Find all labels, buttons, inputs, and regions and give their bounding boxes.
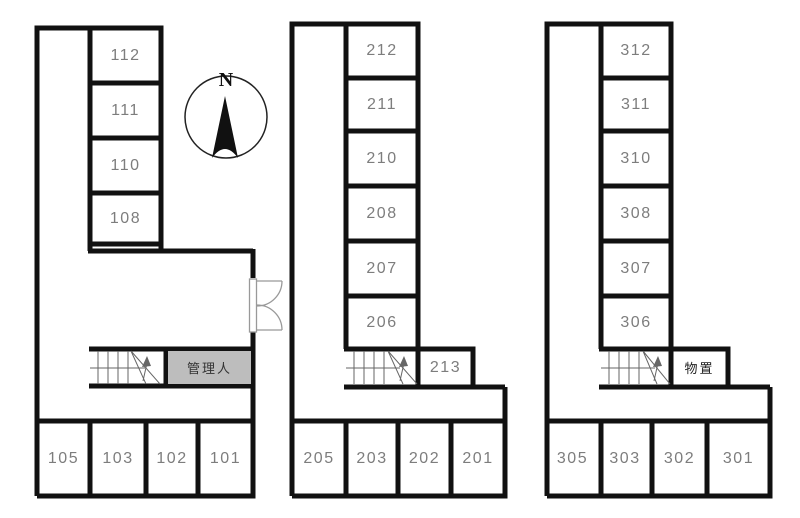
room-202: 202 [398, 421, 451, 496]
room-207: 207 [346, 241, 418, 296]
room-111: 111 [90, 83, 161, 138]
room-101: 101 [198, 421, 253, 496]
stairs-icon [90, 351, 160, 384]
floor-plan-canvas: N 112 111 110 108 管理人 105 103 102 101 21… [0, 0, 800, 518]
room-102: 102 [146, 421, 198, 496]
room-310: 310 [601, 131, 671, 186]
room-306: 306 [601, 296, 671, 349]
room-manager: 管理人 [168, 351, 251, 384]
room-210: 210 [346, 131, 418, 186]
room-211: 211 [346, 78, 418, 131]
room-103: 103 [90, 421, 146, 496]
room-110: 110 [90, 138, 161, 193]
room-305: 305 [547, 421, 598, 496]
room-storage: 物置 [671, 351, 728, 384]
room-112: 112 [90, 28, 161, 83]
room-206: 206 [346, 296, 418, 349]
room-312: 312 [601, 24, 671, 78]
room-307: 307 [601, 241, 671, 296]
room-303: 303 [598, 421, 652, 496]
compass-north-label: N [213, 69, 239, 92]
double-door-icon [250, 279, 283, 332]
room-201: 201 [451, 421, 505, 496]
stairs-icon [346, 351, 417, 384]
room-212: 212 [346, 24, 418, 78]
room-105: 105 [37, 421, 90, 496]
room-302: 302 [652, 421, 707, 496]
room-108: 108 [90, 193, 161, 244]
stairs-icon [601, 351, 670, 384]
room-208: 208 [346, 186, 418, 241]
room-213: 213 [418, 351, 473, 384]
room-205: 205 [292, 421, 346, 496]
room-203: 203 [346, 421, 398, 496]
room-301: 301 [707, 421, 770, 496]
room-308: 308 [601, 186, 671, 241]
room-311: 311 [601, 78, 671, 131]
